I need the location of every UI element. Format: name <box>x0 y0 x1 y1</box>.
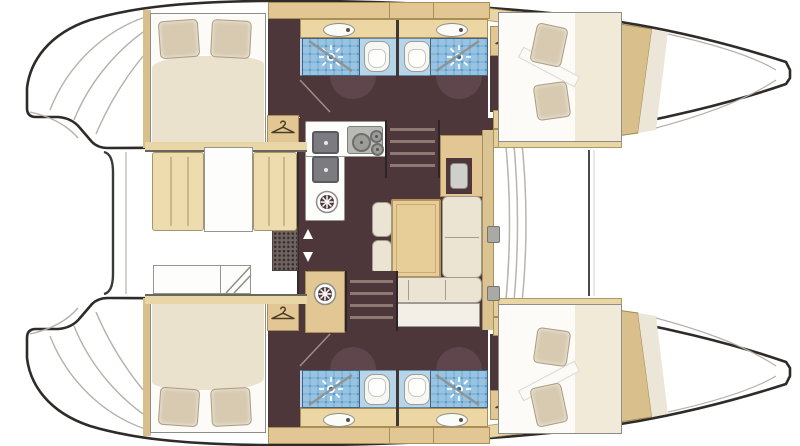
pillow <box>529 22 569 68</box>
pillow <box>158 387 201 428</box>
port-fwd-toilet <box>404 41 430 72</box>
washbasin <box>436 23 468 37</box>
port-aft-cabin-bed <box>150 13 266 147</box>
catamaran-floorplan <box>0 0 800 446</box>
duvet <box>152 54 264 145</box>
port-aft-toilet <box>364 41 390 72</box>
cockpit-aft-deck-strip <box>145 294 307 304</box>
salon-stool <box>372 202 392 237</box>
starboard-bow-locker <box>638 313 668 417</box>
port-vanity-counter <box>300 19 488 38</box>
hanger-icon <box>270 306 296 326</box>
windshield-lines <box>505 134 526 312</box>
shower-spray-icon <box>431 371 487 407</box>
starboard-aft-shower <box>302 370 360 408</box>
starboard-companionway-stairs <box>345 271 398 331</box>
door-arrow-down-icon <box>303 252 313 262</box>
port-fwd-shower <box>430 38 488 76</box>
pillow <box>533 327 572 367</box>
starboard-aft-wardrobe <box>267 301 299 331</box>
duvet <box>152 301 264 392</box>
starboard-vanity-counter <box>300 408 488 427</box>
washbasin <box>323 413 355 427</box>
stove-icon <box>347 126 383 154</box>
round-hatch-icon <box>313 282 337 306</box>
shower-spray-icon <box>303 39 359 75</box>
port-companionway-stairs <box>385 120 440 178</box>
port-outboard-cabinets <box>268 2 490 19</box>
door-arrow-up-icon <box>303 229 313 239</box>
entry-mat <box>272 226 298 271</box>
port-fwd-cabin-bed <box>498 12 622 142</box>
deck-hatch <box>487 286 500 301</box>
port-aft-passage-floor <box>268 19 300 117</box>
round-hatch-icon <box>315 190 339 214</box>
starboard-fwd-cabin-bed <box>498 304 622 434</box>
shower-spray-icon <box>431 39 487 75</box>
port-aft-wardrobe <box>267 115 299 145</box>
salon-seat-base <box>396 303 480 327</box>
port-aft-shower <box>302 38 360 76</box>
washbasin <box>436 413 468 427</box>
pillow <box>210 387 252 427</box>
salon-sofa-side <box>442 196 482 278</box>
nav-station-seat <box>450 163 468 189</box>
pillow <box>210 19 252 59</box>
starboard-outboard-cabinets <box>268 427 490 444</box>
cockpit-bench-cushion <box>152 152 204 231</box>
aft-cockpit-edge <box>104 152 113 294</box>
bow-inner-lines <box>656 34 776 412</box>
starboard-bathroom-divider-wall <box>396 369 399 426</box>
pillow <box>533 81 572 121</box>
starboard-aft-toilet <box>364 374 390 405</box>
salon-stool <box>372 240 392 275</box>
port-bow-locker <box>638 29 668 133</box>
pillow <box>158 19 201 60</box>
cockpit-aft-bench <box>153 265 251 294</box>
deck-hatch <box>487 226 500 243</box>
pillow <box>529 382 569 428</box>
shower-spray-icon <box>303 371 359 407</box>
washbasin <box>323 23 355 37</box>
cockpit-bench-cushion <box>253 152 297 231</box>
port-bathroom-divider-wall <box>396 20 399 77</box>
starboard-aft-passage-floor <box>268 329 300 427</box>
galley-sink <box>312 131 339 154</box>
hanger-icon <box>270 120 296 140</box>
starboard-fwd-shower <box>430 370 488 408</box>
starboard-fwd-toilet <box>404 374 430 405</box>
cockpit-table <box>204 147 253 232</box>
starboard-aft-cabin-bed <box>150 299 266 433</box>
salon-dining-table <box>391 199 441 278</box>
galley-sink <box>312 156 339 183</box>
